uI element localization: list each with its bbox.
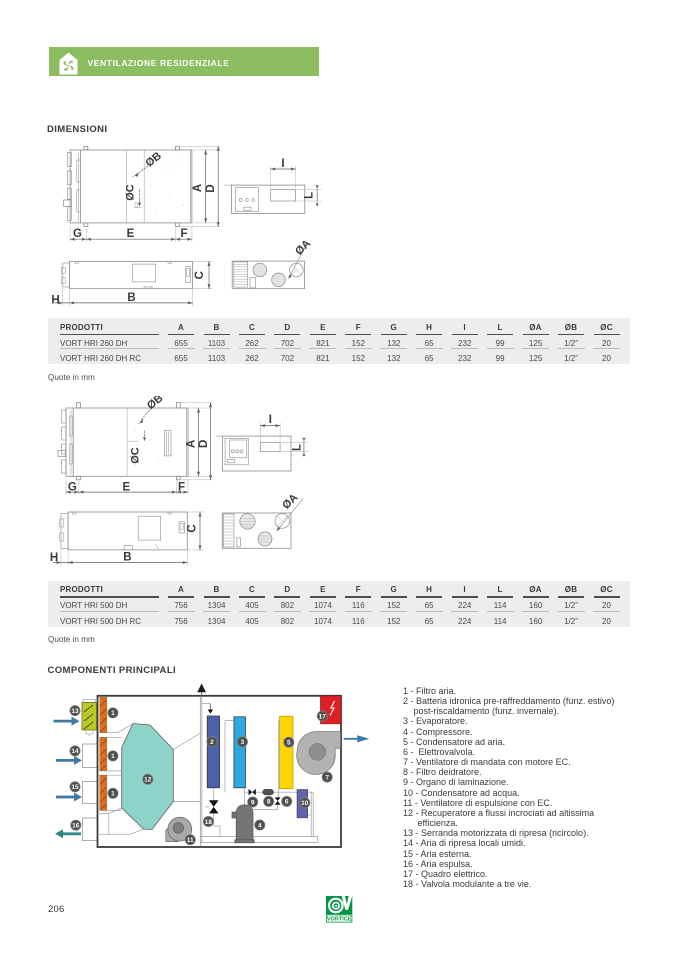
svg-text:13: 13 (71, 708, 79, 715)
svg-text:B: B (123, 551, 131, 563)
svg-text:17: 17 (319, 713, 327, 720)
svg-text:15: 15 (71, 784, 79, 791)
svg-text:1: 1 (111, 710, 115, 717)
svg-text:2: 2 (210, 739, 214, 746)
svg-text:ØB: ØB (143, 150, 163, 170)
svg-text:C: C (186, 524, 198, 532)
svg-text:6: 6 (285, 799, 289, 806)
svg-text:7: 7 (325, 774, 329, 781)
svg-text:H: H (50, 552, 58, 564)
svg-text:ØA: ØA (293, 238, 313, 258)
svg-text:ØC: ØC (129, 447, 141, 464)
svg-text:D: D (205, 184, 217, 192)
svg-text:F: F (178, 481, 185, 493)
svg-text:F: F (180, 228, 187, 240)
svg-text:16: 16 (72, 823, 80, 830)
svg-text:L: L (292, 444, 304, 451)
svg-text:12: 12 (144, 777, 152, 784)
svg-text:ØA: ØA (280, 492, 300, 512)
svg-text:VORTICE: VORTICE (326, 917, 351, 923)
svg-text:11: 11 (187, 837, 194, 844)
svg-text:E: E (122, 481, 130, 493)
svg-text:ØC: ØC (125, 184, 137, 201)
svg-text:A: A (192, 184, 204, 192)
svg-text:C: C (194, 271, 206, 279)
svg-text:18: 18 (205, 819, 213, 826)
svg-text:4: 4 (258, 822, 262, 829)
svg-text:A: A (186, 440, 198, 448)
svg-text:G: G (73, 228, 82, 240)
svg-text:8: 8 (267, 799, 271, 806)
svg-text:B: B (127, 292, 135, 304)
svg-text:H: H (51, 295, 59, 307)
svg-text:5: 5 (287, 740, 291, 747)
svg-text:9: 9 (251, 799, 255, 806)
svg-text:I: I (281, 158, 284, 170)
svg-text:ØB: ØB (145, 396, 165, 412)
svg-text:L: L (304, 192, 316, 199)
svg-text:1: 1 (111, 753, 115, 760)
svg-text:E: E (127, 228, 135, 240)
svg-text:1: 1 (111, 791, 115, 798)
svg-text:10: 10 (301, 800, 309, 807)
svg-text:3: 3 (241, 739, 245, 746)
svg-text:D: D (198, 440, 210, 448)
svg-text:G: G (68, 481, 77, 493)
svg-text:I: I (269, 414, 272, 426)
svg-text:14: 14 (71, 748, 79, 755)
